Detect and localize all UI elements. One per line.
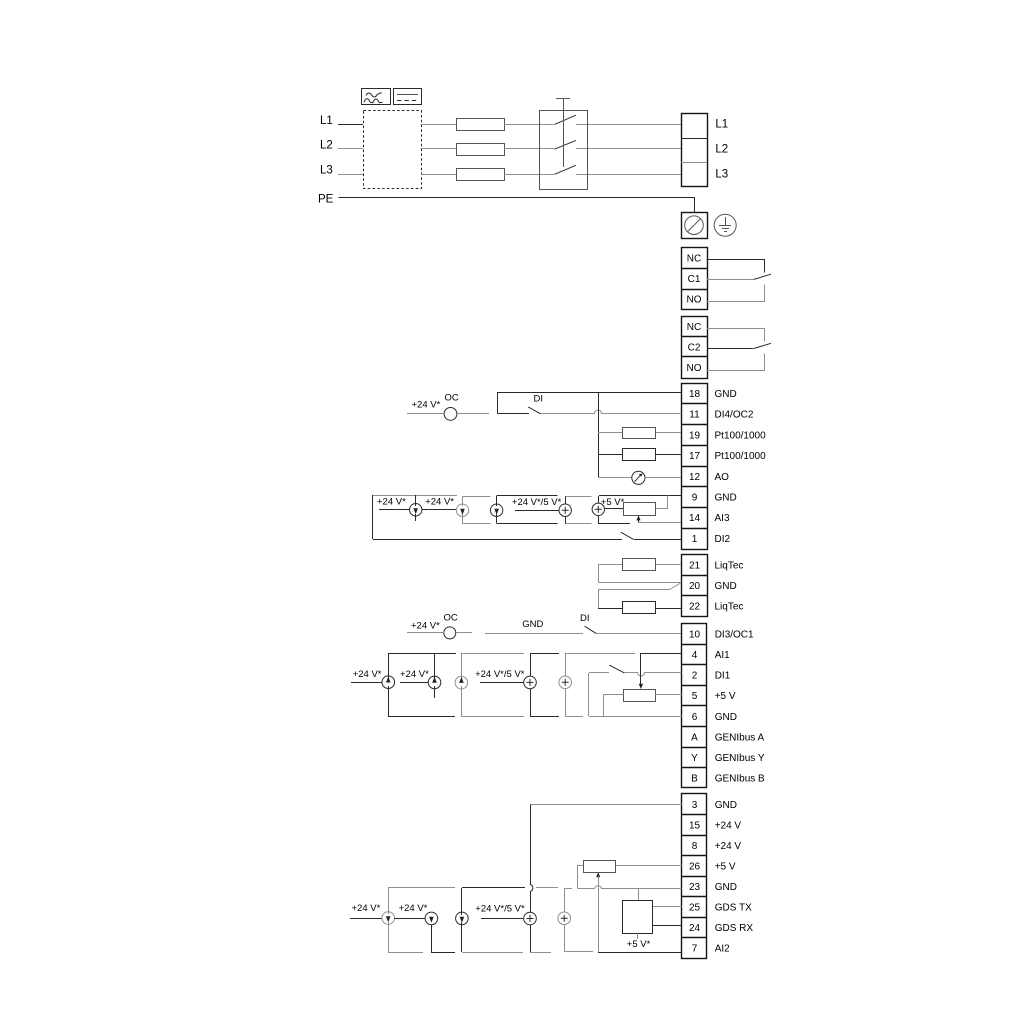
- svg-text:LiqTec: LiqTec: [715, 602, 744, 613]
- svg-text:Pt100/1000: Pt100/1000: [715, 451, 767, 462]
- svg-text:AI1: AI1: [715, 650, 730, 661]
- svg-text:2: 2: [692, 671, 698, 682]
- svg-text:L3: L3: [715, 169, 728, 181]
- svg-text:NC: NC: [687, 322, 701, 333]
- svg-text:DI1: DI1: [715, 671, 731, 682]
- svg-text:AI3: AI3: [715, 513, 730, 524]
- svg-text:+5 V*: +5 V*: [601, 497, 625, 508]
- svg-text:AO: AO: [715, 472, 730, 483]
- svg-text:12: 12: [689, 472, 701, 483]
- svg-text:OC: OC: [445, 393, 459, 404]
- svg-text:+24 V*: +24 V*: [400, 669, 429, 680]
- svg-text:A: A: [691, 733, 698, 744]
- svg-text:GND: GND: [715, 800, 737, 811]
- svg-text:GENIbus Y: GENIbus Y: [715, 753, 765, 764]
- svg-text:GENIbus A: GENIbus A: [715, 733, 765, 744]
- svg-text:19: 19: [689, 430, 701, 441]
- svg-text:18: 18: [689, 389, 701, 400]
- svg-text:4: 4: [692, 650, 698, 661]
- svg-text:GND: GND: [522, 619, 543, 630]
- svg-text:OC: OC: [444, 613, 458, 624]
- svg-text:+24 V*: +24 V*: [425, 497, 454, 508]
- svg-text:C2: C2: [688, 343, 701, 354]
- svg-text:GND: GND: [715, 389, 737, 400]
- svg-text:L1: L1: [320, 115, 333, 127]
- svg-text:26: 26: [689, 862, 701, 873]
- svg-text:5: 5: [692, 691, 698, 702]
- svg-text:20: 20: [689, 581, 701, 592]
- svg-text:DI: DI: [580, 613, 590, 624]
- svg-text:GND: GND: [715, 712, 737, 723]
- svg-text:L1: L1: [715, 119, 728, 131]
- svg-text:DI: DI: [534, 394, 544, 405]
- svg-text:14: 14: [689, 513, 701, 524]
- svg-text:GND: GND: [715, 882, 737, 893]
- svg-text:21: 21: [689, 561, 701, 572]
- svg-text:22: 22: [689, 602, 701, 613]
- svg-text:DI4/OC2: DI4/OC2: [715, 410, 754, 421]
- svg-text:C1: C1: [688, 274, 701, 285]
- svg-text:GND: GND: [715, 581, 737, 592]
- svg-text:+24 V*/5 V*: +24 V*/5 V*: [475, 669, 525, 680]
- svg-text:L2: L2: [320, 140, 333, 152]
- svg-text:+24 V*: +24 V*: [353, 669, 382, 680]
- svg-text:L3: L3: [320, 165, 333, 177]
- svg-text:+5 V: +5 V: [715, 691, 736, 702]
- svg-text:NC: NC: [687, 254, 701, 265]
- svg-text:DI2: DI2: [715, 534, 731, 545]
- svg-text:11: 11: [689, 410, 700, 421]
- svg-text:+24 V*/5 V*: +24 V*/5 V*: [512, 497, 562, 508]
- svg-text:1: 1: [692, 534, 698, 545]
- svg-text:GND: GND: [715, 493, 737, 504]
- svg-text:+24 V: +24 V: [715, 820, 742, 831]
- svg-text:GDS RX: GDS RX: [715, 923, 754, 934]
- svg-text:+24 V*: +24 V*: [352, 903, 381, 914]
- svg-text:+5 V*: +5 V*: [627, 939, 651, 950]
- svg-text:GDS TX: GDS TX: [715, 903, 752, 914]
- svg-text:+24 V*: +24 V*: [412, 400, 441, 411]
- svg-text:B: B: [691, 773, 698, 784]
- svg-text:25: 25: [689, 903, 701, 914]
- svg-text:NO: NO: [687, 363, 702, 374]
- svg-text:L2: L2: [715, 144, 728, 156]
- svg-text:24: 24: [689, 923, 701, 934]
- svg-text:7: 7: [692, 944, 698, 955]
- svg-text:PE: PE: [318, 194, 334, 206]
- svg-text:8: 8: [692, 841, 698, 852]
- svg-text:+24 V*: +24 V*: [377, 497, 406, 508]
- svg-text:GENIbus B: GENIbus B: [715, 773, 765, 784]
- svg-text:Pt100/1000: Pt100/1000: [715, 430, 767, 441]
- svg-text:10: 10: [689, 630, 701, 641]
- svg-text:+24 V*: +24 V*: [399, 903, 428, 914]
- svg-text:Y: Y: [691, 753, 698, 764]
- svg-text:6: 6: [692, 712, 698, 723]
- svg-text:AI2: AI2: [715, 944, 730, 955]
- svg-text:3: 3: [692, 800, 698, 811]
- svg-text:+24 V*: +24 V*: [411, 621, 440, 632]
- svg-text:17: 17: [689, 451, 701, 462]
- svg-text:DI3/OC1: DI3/OC1: [715, 630, 754, 641]
- svg-text:23: 23: [689, 882, 701, 893]
- svg-text:NO: NO: [687, 295, 702, 306]
- svg-text:+24 V*/5 V*: +24 V*/5 V*: [475, 904, 525, 915]
- svg-text:+5 V: +5 V: [715, 862, 736, 873]
- svg-text:9: 9: [692, 493, 698, 504]
- svg-text:+24 V: +24 V: [715, 841, 742, 852]
- svg-text:15: 15: [689, 820, 701, 831]
- svg-text:LiqTec: LiqTec: [715, 561, 744, 572]
